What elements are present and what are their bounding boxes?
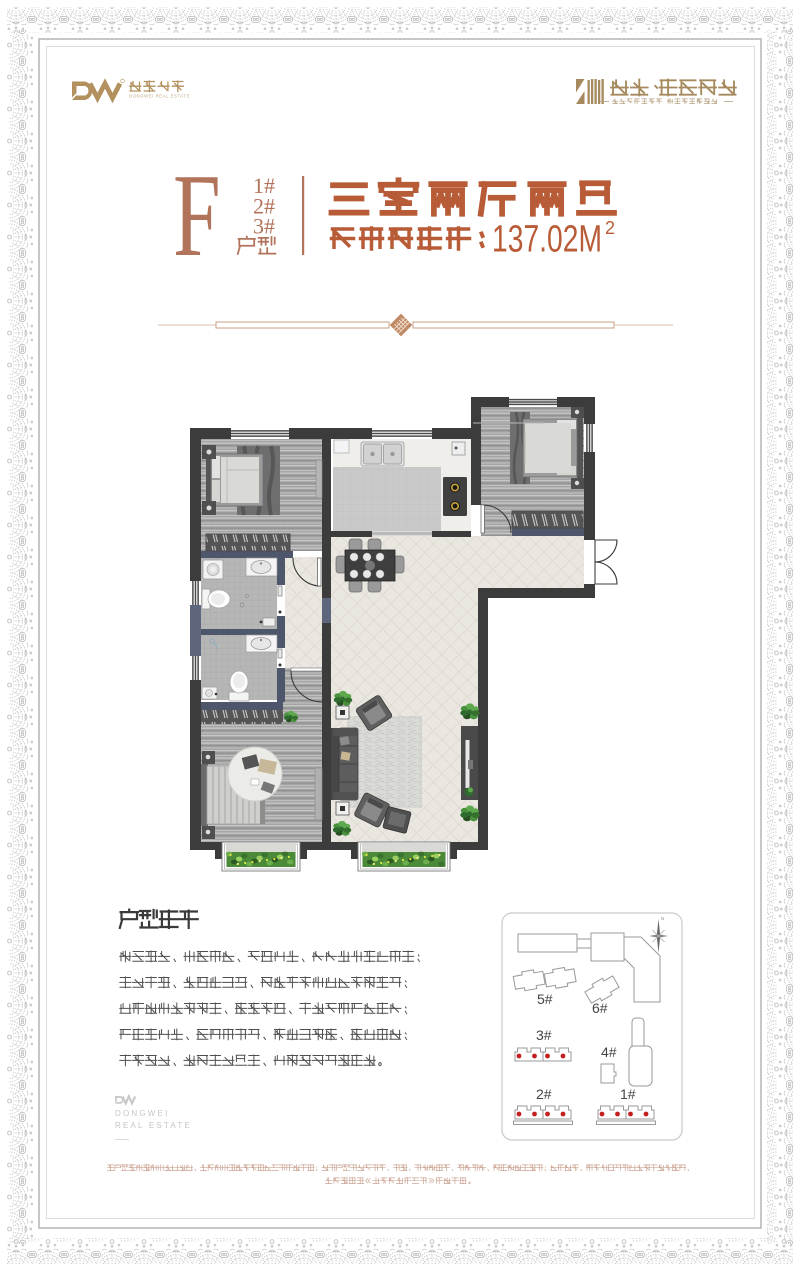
svg-text:137.02M: 137.02M — [492, 219, 602, 261]
svg-text:3#: 3# — [253, 214, 275, 239]
svg-text:2: 2 — [605, 218, 615, 238]
svg-text:5#: 5# — [537, 991, 553, 1007]
svg-text:1#: 1# — [620, 1086, 636, 1102]
svg-text:F: F — [173, 151, 221, 282]
svg-text:4#: 4# — [601, 1044, 617, 1060]
svg-text:DONGWEI REAL ESTATE: DONGWEI REAL ESTATE — [129, 94, 190, 99]
svg-text:N: N — [661, 916, 664, 921]
svg-text:3#: 3# — [536, 1027, 552, 1043]
svg-text:6#: 6# — [592, 1000, 608, 1016]
svg-text:2#: 2# — [536, 1086, 552, 1102]
svg-text:REAL ESTATE: REAL ESTATE — [115, 1121, 192, 1130]
svg-text:DONGWEI: DONGWEI — [115, 1109, 170, 1118]
